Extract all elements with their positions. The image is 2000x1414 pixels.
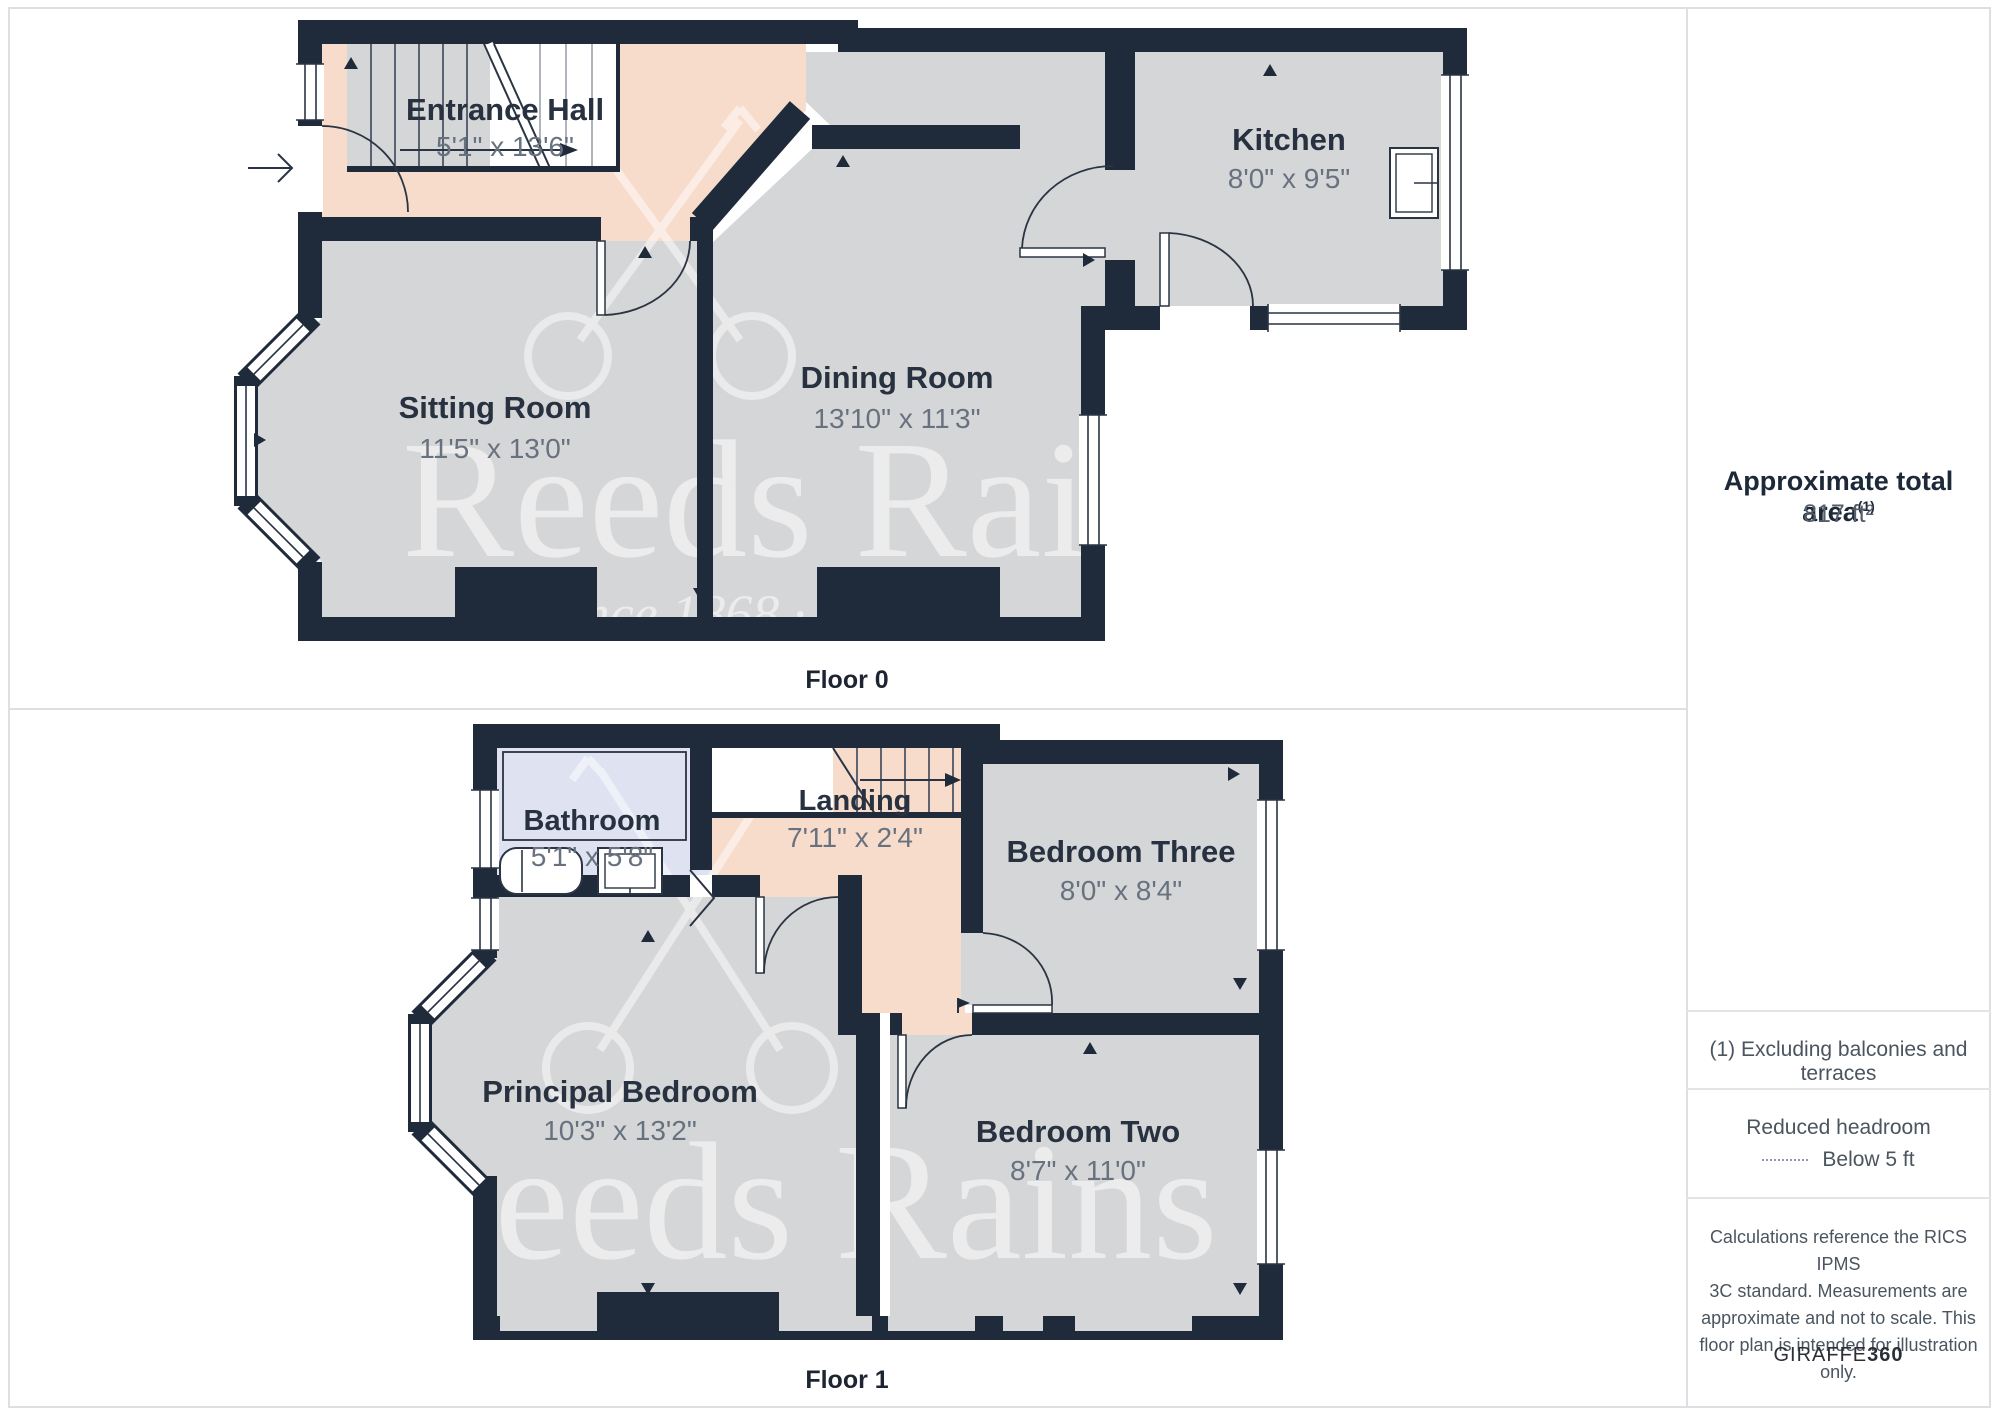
floor1-plan: Reeds Rains · Since 1868 · bbox=[0, 0, 2000, 1414]
total-area-value: 817 ft² bbox=[1688, 500, 1989, 529]
room-label: Bedroom Three bbox=[1006, 834, 1235, 869]
giraffe360-logo: GIRAFFE360 bbox=[1688, 1344, 1989, 1367]
room-label: Bedroom Two bbox=[976, 1114, 1180, 1149]
balconies-note: (1) Excluding balconies and terraces bbox=[1688, 1038, 1989, 1086]
principal-door-opening bbox=[760, 875, 838, 897]
disclaimer-line: approximate and not to scale. This bbox=[1688, 1305, 1989, 1332]
room-label: Bathroom bbox=[524, 805, 661, 837]
room-dims: 5'1" x 5'8" bbox=[531, 841, 653, 872]
room-dims: 8'0" x 8'4" bbox=[1060, 875, 1182, 906]
bathroom-window bbox=[471, 790, 499, 868]
room-dims: 8'7" x 11'0" bbox=[1010, 1155, 1146, 1186]
brand-name: GIRAFFE bbox=[1773, 1344, 1867, 1366]
legend-item: Below 5 ft bbox=[1688, 1148, 1989, 1172]
reduced-headroom-dash bbox=[1762, 1159, 1808, 1161]
bedroom3-door-leaf bbox=[973, 1005, 1052, 1013]
bedroom2-window bbox=[1257, 1150, 1285, 1264]
room-dims: 10'3" x 13'2" bbox=[543, 1115, 697, 1146]
principal-side-window bbox=[471, 898, 499, 950]
room-label: Principal Bedroom bbox=[482, 1074, 758, 1109]
floorplan-page: Reeds Rai · Since 1868 · bbox=[0, 0, 2000, 1414]
room-label: Landing bbox=[799, 785, 912, 817]
bedroom3-door-opening bbox=[961, 933, 983, 1005]
legend-title: Reduced headroom bbox=[1688, 1116, 1989, 1140]
floor1-caption: Floor 1 bbox=[8, 1366, 1686, 1395]
bedroom2-door-leaf bbox=[898, 1035, 906, 1108]
principal-door-leaf bbox=[756, 897, 764, 973]
disclaimer-line: 3C standard. Measurements are bbox=[1688, 1278, 1989, 1305]
bedroom2-door-opening bbox=[902, 1013, 972, 1035]
bedroom3-window bbox=[1257, 800, 1285, 950]
disclaimer-line: Calculations reference the RICS IPMS bbox=[1688, 1224, 1989, 1278]
legend-item-label: Below 5 ft bbox=[1822, 1148, 1914, 1171]
brand-suffix: 360 bbox=[1867, 1344, 1903, 1366]
room-dims: 7'11" x 2'4" bbox=[787, 822, 923, 853]
